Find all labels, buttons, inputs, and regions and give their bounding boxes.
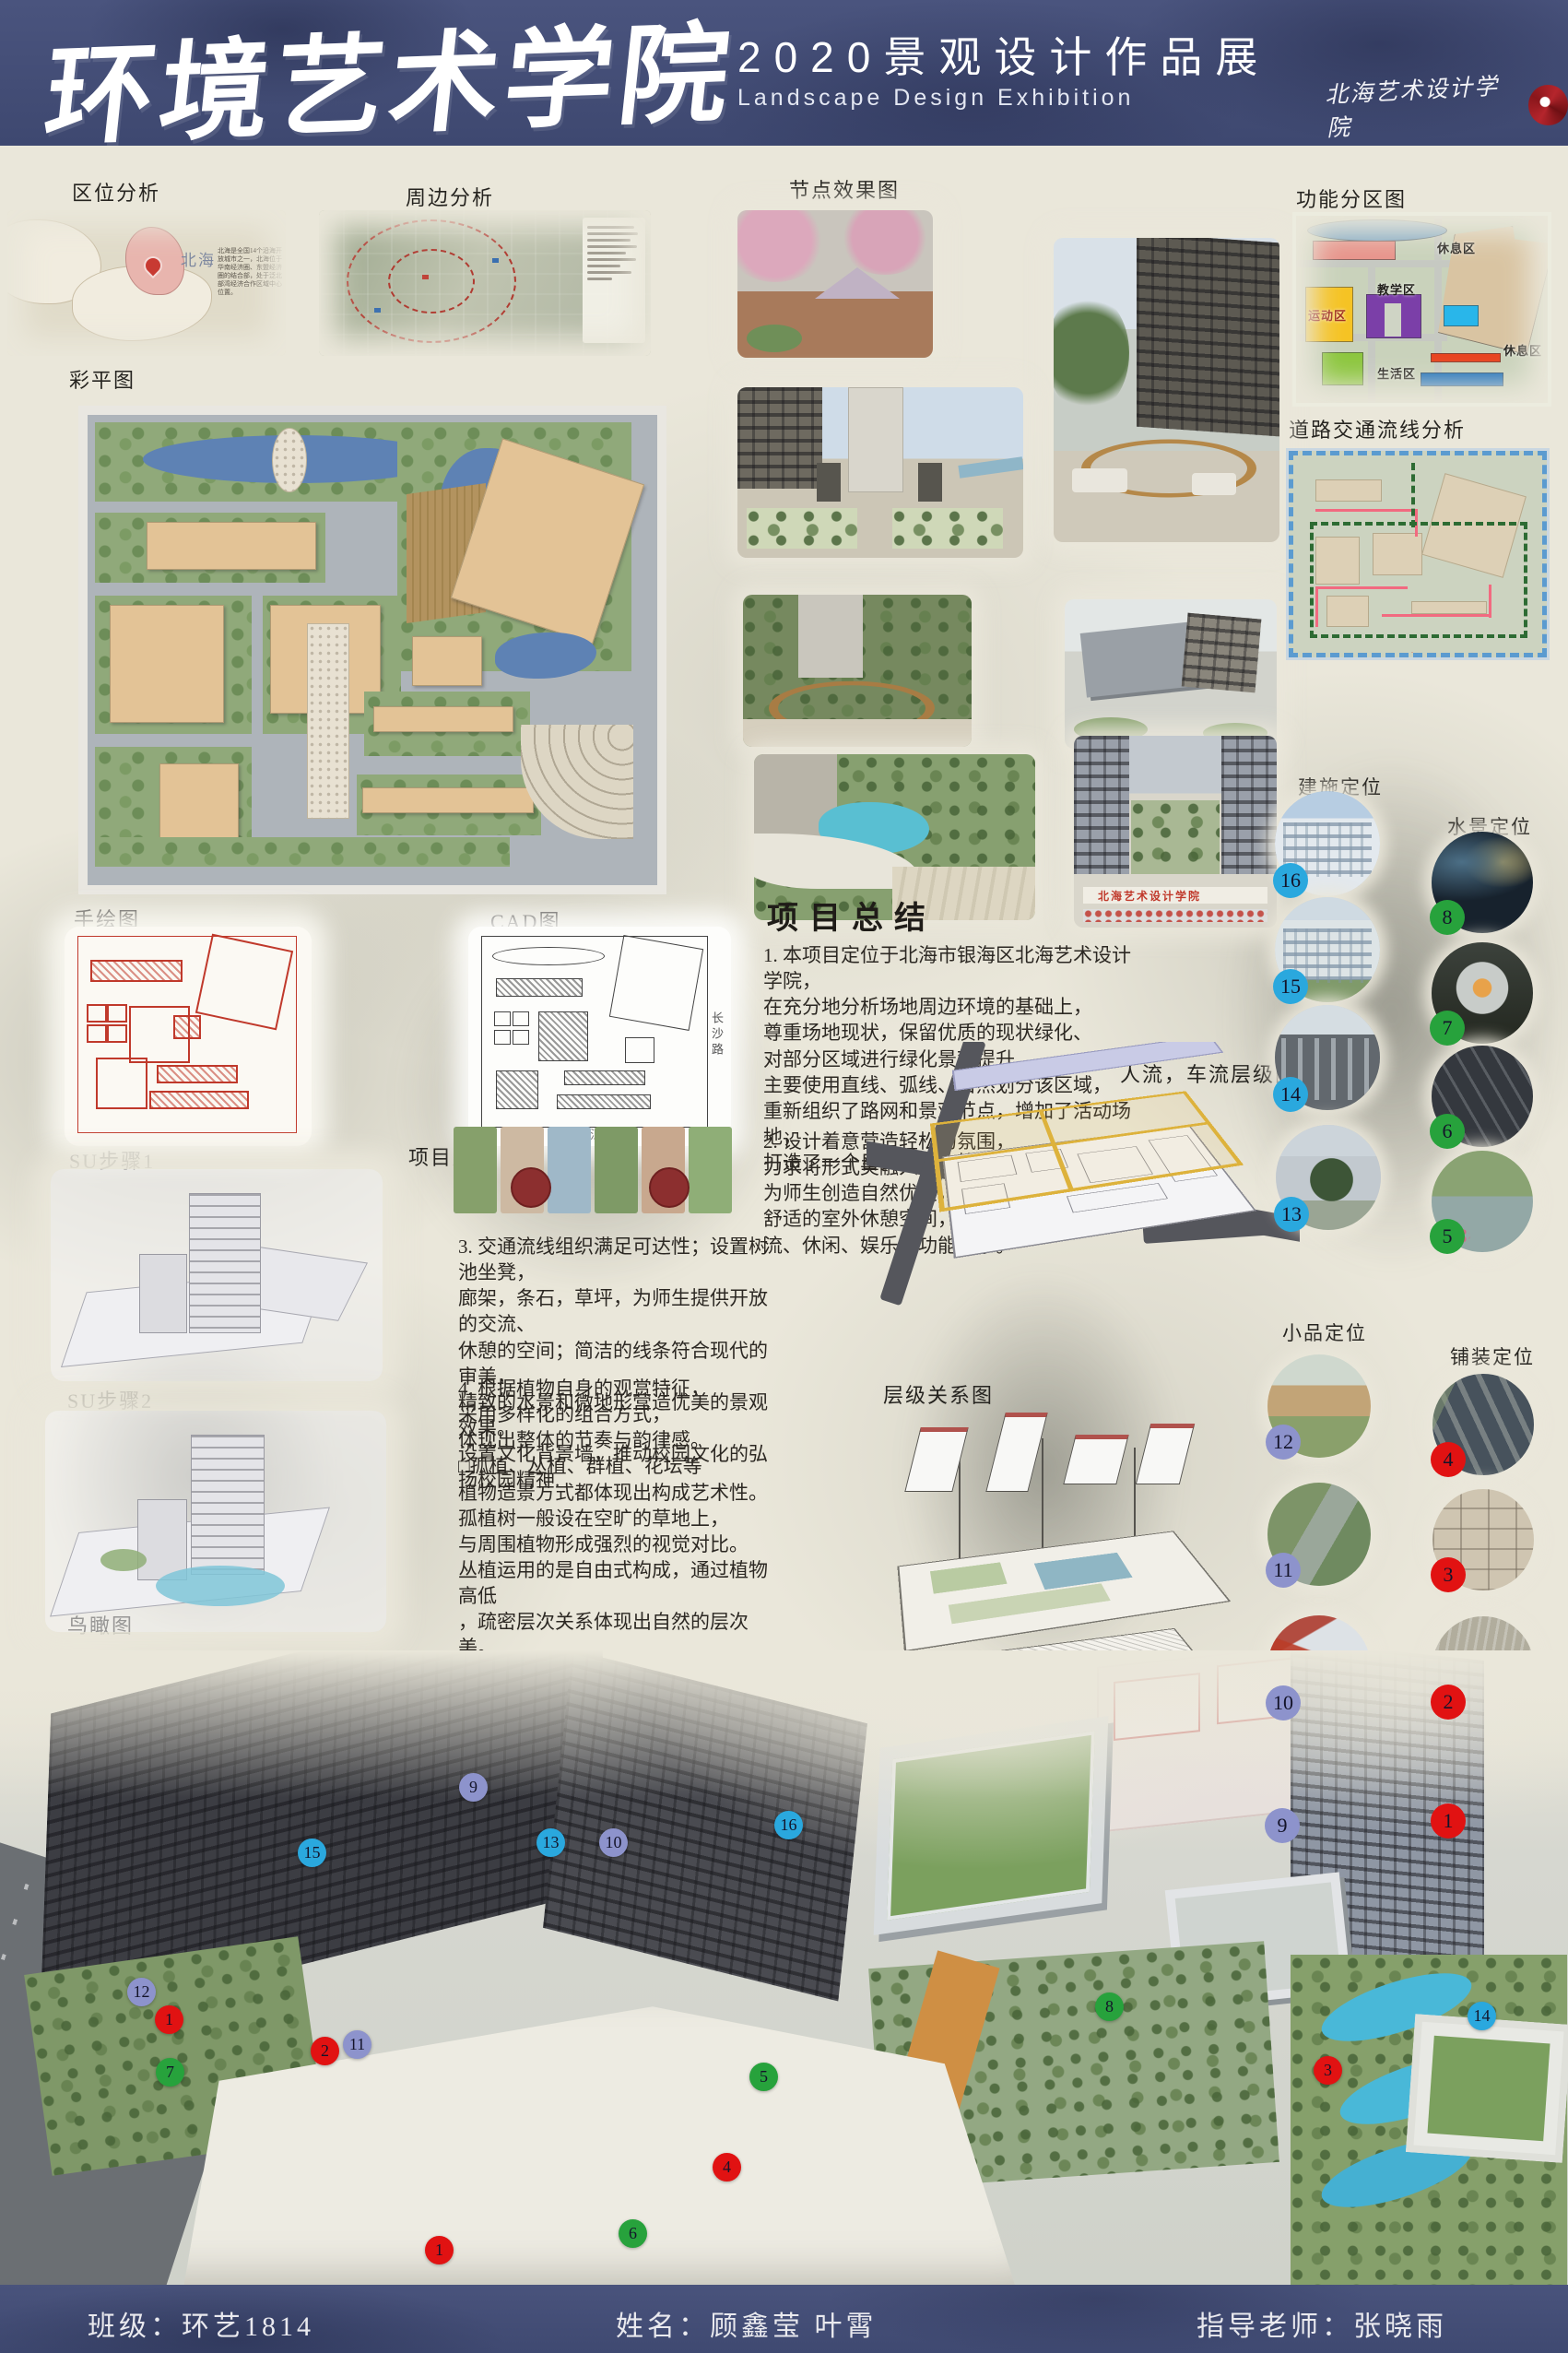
surrounding-analysis-map <box>319 210 651 356</box>
node-photo-cherry-courtyard <box>737 210 933 358</box>
node-photo-tower-pergola <box>1054 238 1279 542</box>
position-photo-circle: 14 <box>1275 1005 1380 1110</box>
section-label-zoning: 功能分区图 <box>1296 183 1407 213</box>
position-photo-circle: 13 <box>1276 1125 1381 1230</box>
zoning-diagram: 休息区 教学区 运动区 生活区 休息区 <box>1292 212 1551 407</box>
green-roof-building <box>874 1716 1109 1935</box>
position-photo-circle: 5 <box>1432 1151 1533 1252</box>
position-photo-circle: 16 <box>1275 791 1380 896</box>
page-title: 环境艺术学院 <box>38 0 743 166</box>
white-building <box>1406 2014 1568 2162</box>
section-label-surrounding: 周边分析 <box>406 182 494 211</box>
su-model-step1 <box>51 1169 383 1381</box>
zone-block-green <box>1322 352 1363 385</box>
master-plan <box>78 406 666 894</box>
footer-banner: 班级：环艺1814 姓名：顾鑫莹 叶霄 指导老师：张晓雨 <box>0 2285 1568 2353</box>
map-city-label: 北海 <box>181 247 216 270</box>
position-badge: 4 <box>1431 1442 1466 1477</box>
vision-collage <box>454 1127 732 1213</box>
footer-name: 姓名：顾鑫莹 叶霄 <box>616 2303 878 2344</box>
exhibition-title-cn: 2020景观设计作品展 <box>737 24 1270 85</box>
position-photo-circle: 11 <box>1267 1483 1371 1586</box>
node-photo-gray-buildings <box>1065 599 1277 749</box>
zone-block-red <box>1431 353 1501 362</box>
summary-paragraph-4: 4. 根据植物自身的观赏特征， 采用多样化的组合方式， 体现出整体的节奏与韵律感… <box>458 1376 772 1687</box>
position-badge: 1 <box>1431 1803 1466 1839</box>
position-photo-circle: 15 <box>1275 897 1380 1002</box>
section-label-traffic: 道路交通流线分析 <box>1289 414 1466 443</box>
vision-logo-icon <box>511 1167 551 1208</box>
position-badge: 3 <box>1431 1557 1466 1592</box>
position-badge: 12 <box>1266 1425 1301 1460</box>
site-dot <box>422 275 429 279</box>
zone-label-sports: 运动区 <box>1308 306 1347 324</box>
position-badge: 14 <box>1273 1077 1308 1112</box>
location-analysis-map: 北海 北海是全国14个沿海开放城市之一，北海位于华南经济圈、东盟经济圈的结合部，… <box>7 210 286 356</box>
section-label-location: 区位分析 <box>72 177 160 207</box>
position-photo-circle: 4 <box>1432 1374 1534 1475</box>
pedestrian-link <box>1411 463 1415 527</box>
footer-advisor: 指导老师：张晓雨 <box>1197 2303 1447 2344</box>
position-photo-circle: 12 <box>1267 1354 1371 1458</box>
vision-logo-icon <box>649 1167 690 1208</box>
position-photo-circle: 3 <box>1432 1489 1534 1590</box>
pedestrian-loop <box>1310 522 1527 638</box>
poi-dot <box>492 258 499 263</box>
position-badge: 15 <box>1273 969 1308 1004</box>
school-logo-text: 北海艺术设计学院 <box>1324 67 1522 144</box>
position-badge: 8 <box>1430 900 1465 935</box>
zone-pond <box>1307 219 1447 242</box>
section-label-hierarchy: 层级关系图 <box>883 1379 994 1409</box>
radius-ring <box>388 249 475 313</box>
surrounding-note-panel <box>583 218 645 343</box>
flow-hierarchy-diagram <box>867 1042 1300 1318</box>
school-swirl-icon <box>1528 85 1568 125</box>
entrance-marker <box>1404 652 1421 657</box>
poi-dot <box>374 308 381 313</box>
exhibition-title-en: Landscape Design Exhibition <box>737 85 1134 112</box>
school-logo: 北海艺术设计学院 <box>1326 72 1568 138</box>
group-label-paving: 铺装定位 <box>1450 1342 1535 1370</box>
section-label-master-plan: 彩平图 <box>69 364 136 394</box>
node-photo-round-pergola <box>743 595 972 747</box>
cad-road-label-right: 长沙路 <box>708 1011 725 1058</box>
render-sign-text: 北海艺术设计学院 <box>1098 888 1201 904</box>
position-badge: 5 <box>1430 1219 1465 1254</box>
hand-drawing-panel <box>65 927 312 1146</box>
section-label-nodes: 节点效果图 <box>789 174 900 204</box>
position-badge: 6 <box>1430 1114 1465 1149</box>
node-photo-entry-courtyard: 北海艺术设计学院 <box>1074 736 1277 928</box>
position-badge: 2 <box>1431 1685 1466 1720</box>
zone-block-salmon <box>1313 241 1396 260</box>
position-badge: 7 <box>1430 1011 1465 1046</box>
poster: 环境艺术学院 2020景观设计作品展 Landscape Design Exhi… <box>0 0 1568 2353</box>
plan-axis <box>307 623 349 819</box>
position-photo-circle: 8 <box>1432 832 1533 933</box>
position-badge: 13 <box>1274 1197 1309 1232</box>
cad-panel: 长沙路 江苏路 <box>468 927 731 1146</box>
zone-block-cyan <box>1444 305 1479 326</box>
aerial-render <box>0 1650 1568 2285</box>
position-photo-circle: 7 <box>1432 942 1533 1044</box>
position-badge: 11 <box>1266 1553 1301 1588</box>
position-photo-circle: 6 <box>1432 1046 1533 1147</box>
map-note-text: 北海是全国14个沿海开放城市之一，北海位于华南经济圈、东盟经济圈的结合部，处于泛… <box>218 247 284 297</box>
node-photo-monument-plaza <box>737 387 1023 558</box>
position-badge: 16 <box>1273 863 1308 898</box>
zone-teaching-notch <box>1385 303 1401 337</box>
header-banner: 环境艺术学院 2020景观设计作品展 Landscape Design Exhi… <box>0 0 1568 146</box>
su-model-step2 <box>45 1411 386 1632</box>
traffic-analysis-map <box>1289 451 1547 657</box>
footer-class: 班级：环艺1814 <box>88 2303 314 2344</box>
zone-block-blue <box>1421 372 1503 386</box>
zone-main-building <box>1431 213 1551 355</box>
zone-label-rest-top: 休息区 <box>1437 239 1476 256</box>
group-label-sketch: 小品定位 <box>1282 1318 1367 1346</box>
position-badge: 9 <box>1265 1808 1300 1843</box>
position-badge: 10 <box>1266 1685 1301 1720</box>
zone-label-living: 生活区 <box>1377 364 1416 382</box>
plan-island <box>272 428 307 492</box>
zone-label-teaching: 教学区 <box>1377 280 1416 298</box>
zone-label-rest-bottom: 休息区 <box>1503 341 1542 359</box>
summary-heading: 项目总结 <box>767 893 937 938</box>
